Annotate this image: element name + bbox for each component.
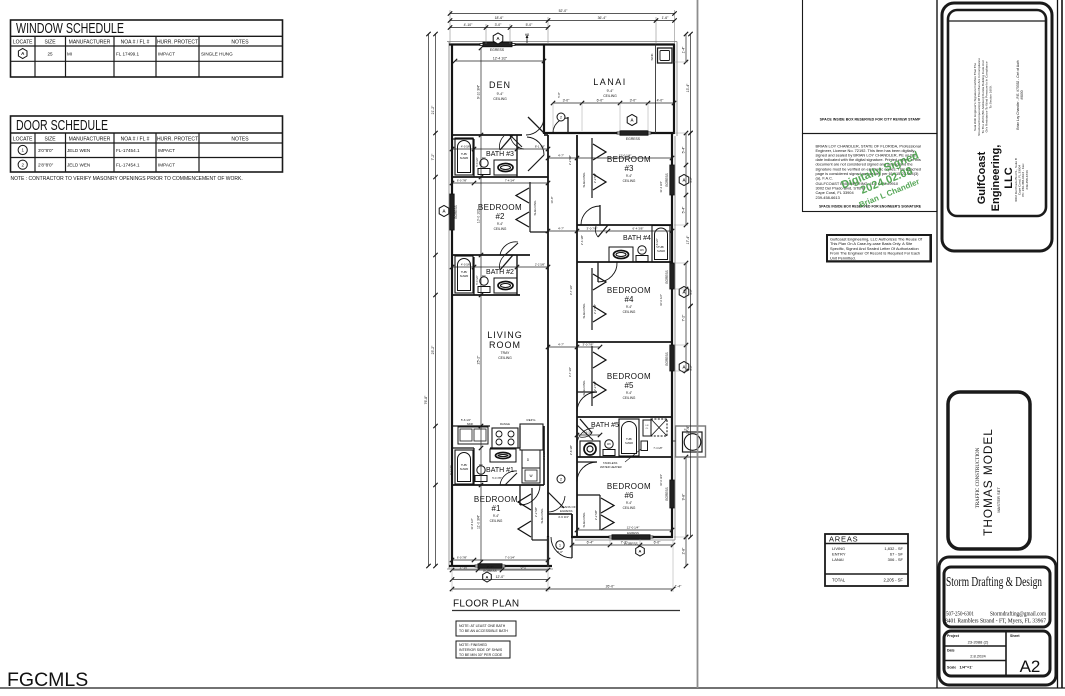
svg-text:AREAS: AREAS	[829, 535, 858, 544]
svg-text:239-458-6733: 239-458-6733	[1025, 170, 1029, 190]
svg-text:2'-6 1/2": 2'-6 1/2"	[583, 430, 593, 434]
svg-text:2'-2 5/8": 2'-2 5/8"	[594, 510, 598, 520]
svg-text:9'-4": 9'-4"	[626, 501, 632, 505]
svg-text:REF'G: REF'G	[527, 418, 537, 422]
svg-text:A: A	[486, 574, 489, 579]
svg-text:3'-2": 3'-2"	[689, 365, 693, 371]
svg-text:7'-4 1/8": 7'-4 1/8"	[653, 447, 662, 450]
svg-text:52'-0": 52'-0"	[559, 9, 568, 13]
svg-text:LIVING: LIVING	[487, 330, 523, 340]
svg-text:EGRESS: EGRESS	[665, 270, 669, 283]
svg-text:D: D	[527, 458, 530, 462]
svg-text:CEILING: CEILING	[490, 519, 503, 523]
svg-text:2'-8": 2'-8"	[681, 547, 685, 555]
svg-text:Storm Drafting & Design: Storm Drafting & Design	[946, 574, 1042, 589]
svg-text:25'-2": 25'-2"	[476, 355, 480, 364]
svg-text:6'-0": 6'-0"	[597, 98, 605, 102]
svg-text:EGRESS: EGRESS	[490, 48, 505, 52]
svg-text:SIZE: SIZE	[44, 40, 56, 46]
svg-text:4'-6 3/4": 4'-6 3/4"	[558, 515, 569, 519]
svg-text:DEN: DEN	[489, 80, 511, 90]
svg-text:To Section 1609.: To Section 1609.	[989, 85, 993, 108]
svg-text:5'-8": 5'-8"	[557, 92, 561, 98]
svg-text:IMPACT: IMPACT	[158, 163, 175, 168]
svg-text:1'-4": 1'-4"	[675, 584, 683, 588]
svg-text:Sheet: Sheet	[1010, 634, 1020, 638]
svg-text:21'-2": 21'-2"	[431, 105, 435, 114]
svg-text:THOMAS MODEL: THOMAS MODEL	[981, 428, 995, 536]
svg-text:EGRESS: EGRESS	[665, 352, 669, 365]
svg-text:5'-4": 5'-4"	[681, 146, 685, 154]
svg-text:2'-2 5/8": 2'-2 5/8"	[593, 304, 597, 314]
svg-text:7'-2": 7'-2"	[487, 565, 495, 569]
svg-text:LIVING: LIVING	[832, 546, 845, 551]
svg-text:Project: Project	[947, 634, 960, 638]
svg-text:25: 25	[47, 52, 53, 57]
svg-text:SHELVING: SHELVING	[582, 172, 586, 188]
svg-text:2'-10": 2'-10"	[460, 565, 469, 569]
svg-text:8401 Ramblers Strand - FT, Mye: 8401 Ramblers Strand - FT, Myers, FL 339…	[945, 619, 1046, 625]
svg-text:12'-0 1/4": 12'-0 1/4"	[627, 525, 640, 529]
svg-text:5'-0 7/8": 5'-0 7/8"	[492, 476, 502, 480]
svg-text:GulfCoast: GulfCoast	[976, 151, 988, 204]
svg-text:CL: CL	[646, 428, 650, 430]
svg-text:W: W	[529, 474, 532, 478]
svg-text:2.8.2024: 2.8.2024	[970, 654, 986, 659]
svg-text:6'-4": 6'-4"	[587, 540, 595, 544]
svg-text:SHWR: SHWR	[657, 249, 665, 253]
svg-text:JELD WEN: JELD WEN	[67, 163, 90, 168]
svg-text:ROOM: ROOM	[489, 340, 521, 350]
svg-text:TRAY: TRAY	[501, 351, 511, 355]
svg-text:6'-4 3/8": 6'-4 3/8"	[633, 226, 644, 230]
svg-text:5'-0 1/2": 5'-0 1/2"	[475, 157, 479, 167]
svg-text:3'-0 7/8": 3'-0 7/8"	[587, 226, 598, 230]
svg-text:FGCMLS: FGCMLS	[7, 669, 88, 691]
svg-text:4'-10": 4'-10"	[464, 23, 473, 27]
svg-text:SHELVING: SHELVING	[582, 380, 586, 396]
svg-text:9'-4": 9'-4"	[497, 92, 505, 96]
svg-text:4'-0 5/8": 4'-0 5/8"	[461, 144, 471, 148]
svg-text:NOTES: NOTES	[231, 137, 249, 143]
svg-text:9'-4": 9'-4"	[493, 514, 499, 518]
svg-text:(a), F.A.C.: (a), F.A.C.	[816, 175, 834, 180]
svg-text:3'0"8'0": 3'0"8'0"	[38, 148, 54, 153]
svg-text:9'-10 3/4": 9'-10 3/4"	[476, 84, 480, 99]
svg-text:7'-0 3/4": 7'-0 3/4"	[505, 555, 515, 559]
svg-text:SHWR: SHWR	[625, 441, 633, 445]
svg-text:MANUFACTURER: MANUFACTURER	[69, 40, 111, 46]
svg-text:EGRESS: EGRESS	[626, 137, 641, 141]
svg-text:TO BE MIN 30" PER CODE: TO BE MIN 30" PER CODE	[459, 653, 503, 657]
svg-text:7'-2": 7'-2"	[621, 540, 629, 544]
svg-text:SHWR: SHWR	[460, 156, 469, 160]
svg-text:SINK: SINK	[650, 53, 654, 60]
svg-text:1/4"=1': 1/4"=1'	[960, 665, 973, 670]
svg-text:2'-2 5/8": 2'-2 5/8"	[534, 507, 538, 517]
svg-text:EGRESS: EGRESS	[665, 173, 669, 186]
svg-text:CEILING: CEILING	[493, 97, 507, 101]
svg-text:9'-4": 9'-4"	[626, 174, 632, 178]
svg-text:LN: LN	[646, 425, 649, 427]
svg-text:SHWR: SHWR	[460, 274, 469, 278]
svg-text:HURR. PROTECT: HURR. PROTECT	[157, 137, 198, 143]
svg-text:FL-17454.1: FL-17454.1	[116, 163, 140, 168]
svg-text:DOOR SCHEDULE: DOOR SCHEDULE	[16, 118, 108, 134]
svg-text:507-250-6301: 507-250-6301	[946, 612, 974, 618]
svg-text:Unit Permitted.: Unit Permitted.	[830, 255, 856, 260]
svg-text:4'-7": 4'-7"	[558, 226, 564, 230]
svg-text:239-458-6613: 239-458-6613	[816, 195, 840, 200]
svg-text:FL 17499.1: FL 17499.1	[116, 52, 140, 57]
svg-text:LOCATE: LOCATE	[13, 137, 33, 143]
svg-text:BEDROOM: BEDROOM	[607, 482, 651, 491]
svg-text:6'-0 7/8": 6'-0 7/8"	[457, 178, 467, 182]
svg-text:2'-2 5/8": 2'-2 5/8"	[568, 155, 572, 165]
svg-text:5'-6 1/2": 5'-6 1/2"	[461, 418, 471, 422]
svg-text:#9800: #9800	[1020, 90, 1024, 99]
svg-text:EGRESS: EGRESS	[454, 205, 458, 218]
svg-text:5'-0 1/2": 5'-0 1/2"	[449, 465, 453, 475]
svg-text:9'-8": 9'-8"	[681, 493, 685, 501]
svg-text:67 - SF: 67 - SF	[890, 552, 904, 557]
svg-text:5'-4": 5'-4"	[681, 206, 685, 214]
svg-text:12'-0": 12'-0"	[496, 575, 505, 579]
svg-text:BEDROOM: BEDROOM	[607, 372, 651, 381]
svg-text:BATH #5: BATH #5	[591, 422, 619, 429]
svg-text:WC: WC	[640, 249, 644, 252]
svg-text:10'-0 1/2": 10'-0 1/2"	[659, 294, 663, 306]
svg-text:6'-0": 6'-0"	[654, 540, 662, 544]
svg-text:BATH #2: BATH #2	[486, 269, 514, 276]
svg-text:9'-4": 9'-4"	[607, 89, 615, 93]
svg-text:3'-0": 3'-0"	[630, 98, 638, 102]
svg-text:BEDROOM: BEDROOM	[478, 203, 522, 212]
svg-text:BATH #1: BATH #1	[486, 467, 514, 474]
svg-text:#6: #6	[625, 491, 634, 500]
svg-text:CEILING: CEILING	[494, 227, 507, 231]
svg-text:6'-2": 6'-2"	[521, 565, 529, 569]
svg-text:CEILING: CEILING	[498, 356, 512, 360]
svg-text:CEILING: CEILING	[623, 396, 636, 400]
svg-text:SHELVING: SHELVING	[582, 303, 586, 319]
svg-text:NOTE: FINISHED: NOTE: FINISHED	[459, 643, 487, 647]
svg-text:BEDROOM: BEDROOM	[607, 286, 651, 295]
svg-text:LOCATE: LOCATE	[13, 40, 33, 46]
svg-text:4'-0 5/8": 4'-0 5/8"	[461, 262, 471, 266]
svg-text:SPACE INSIDE BOX RESERVED FOR: SPACE INSIDE BOX RESERVED FOR CITY REVIE…	[820, 118, 921, 122]
svg-text:CEILING: CEILING	[623, 506, 636, 510]
svg-text:36'-4": 36'-4"	[598, 16, 607, 20]
svg-text:7'-2": 7'-2"	[681, 314, 685, 322]
svg-text:BATH #3: BATH #3	[486, 151, 514, 158]
svg-text:SIZE: SIZE	[44, 137, 56, 143]
svg-text:#4: #4	[625, 295, 634, 304]
svg-text:Scale: Scale	[947, 666, 956, 670]
svg-text:13'-4": 13'-4"	[686, 83, 690, 92]
svg-text:17'-4": 17'-4"	[686, 235, 690, 244]
svg-text:RANGE: RANGE	[500, 422, 510, 426]
svg-text:10'-0 1/2": 10'-0 1/2"	[476, 208, 480, 223]
svg-text:#1: #1	[492, 504, 501, 513]
svg-text:BATH #4: BATH #4	[623, 235, 651, 242]
svg-text:HURR. PROTECT: HURR. PROTECT	[157, 40, 198, 46]
svg-text:TO BE AN ACCESSIBLE BATH: TO BE AN ACCESSIBLE BATH	[459, 629, 508, 633]
svg-text:3'-2": 3'-2"	[689, 177, 693, 183]
svg-text:12'-4 1/2": 12'-4 1/2"	[493, 56, 508, 60]
svg-text:LANAI: LANAI	[593, 77, 627, 87]
svg-text:3'-7 1/2": 3'-7 1/2"	[569, 285, 573, 295]
svg-text:2'-6 1/8": 2'-6 1/8"	[580, 235, 584, 245]
svg-text:JELD WEN: JELD WEN	[67, 148, 90, 153]
svg-text:1,832 - SF: 1,832 - SF	[884, 546, 903, 551]
svg-text:3'-7 1/2": 3'-7 1/2"	[568, 367, 572, 377]
svg-text:WATER HEATER: WATER HEATER	[600, 465, 622, 469]
svg-text:NOTE : CONTRACTOR TO VERIFY MA: NOTE : CONTRACTOR TO VERIFY MASONRY OPEN…	[11, 176, 243, 182]
svg-text:26'-0": 26'-0"	[606, 584, 615, 588]
svg-text:SINGLE HUNG: SINGLE HUNG	[201, 52, 233, 57]
svg-text:INTERIOR SIDE OF SHWS: INTERIOR SIDE OF SHWS	[459, 648, 503, 652]
svg-text:3'-2": 3'-2"	[689, 289, 693, 295]
svg-text:4'-7": 4'-7"	[558, 153, 564, 157]
svg-text:TOTAL: TOTAL	[832, 578, 846, 583]
svg-text:FLOOR PLAN: FLOOR PLAN	[453, 599, 519, 610]
svg-text:NOTES: NOTES	[231, 40, 249, 46]
svg-text:IMPACT: IMPACT	[158, 52, 175, 57]
svg-text:EGRESS: EGRESS	[665, 487, 669, 500]
svg-text:7'-2": 7'-2"	[431, 153, 435, 161]
svg-text:1'-4": 1'-4"	[681, 46, 685, 54]
svg-text:306 - SF: 306 - SF	[888, 557, 904, 562]
svg-text:25'-2": 25'-2"	[431, 345, 435, 354]
svg-text:16'-8": 16'-8"	[550, 196, 554, 203]
svg-text:LANAI: LANAI	[832, 557, 844, 562]
svg-text:18'-6": 18'-6"	[495, 16, 504, 20]
svg-text:FL-17454.1: FL-17454.1	[116, 148, 140, 153]
svg-text:7'-4 3/4": 7'-4 3/4"	[505, 178, 515, 182]
svg-text:2'-2 5/8": 2'-2 5/8"	[593, 173, 597, 183]
svg-text:WC: WC	[607, 443, 611, 446]
svg-text:8'-1 3/8": 8'-1 3/8"	[535, 144, 545, 148]
svg-text:BEDROOM: BEDROOM	[474, 495, 518, 504]
svg-text:EGRESS: EGRESS	[560, 509, 573, 513]
svg-text:CEILING: CEILING	[623, 310, 636, 314]
svg-text:MASTER SET: MASTER SET	[996, 487, 1001, 513]
svg-text:#2: #2	[496, 212, 505, 221]
svg-text:#5: #5	[625, 381, 634, 390]
svg-text:WINDOW SCHEDULE: WINDOW SCHEDULE	[16, 21, 124, 37]
svg-text:10'-0 3/4": 10'-0 3/4"	[659, 474, 663, 486]
svg-text:2'-2 5/8": 2'-2 5/8"	[542, 450, 546, 460]
svg-text:5'-0": 5'-0"	[526, 23, 534, 27]
svg-text:2'-8 1/8": 2'-8 1/8"	[569, 445, 573, 455]
svg-text:Stormdrafting@gmail.com: Stormdrafting@gmail.com	[990, 611, 1046, 618]
svg-text:MI: MI	[67, 52, 72, 57]
svg-text:EGRESS: EGRESS	[627, 531, 639, 535]
svg-text:ENTRY: ENTRY	[832, 552, 846, 557]
svg-text:6'-0 7/8": 6'-0 7/8"	[457, 555, 467, 559]
svg-text:CEILING: CEILING	[623, 179, 636, 183]
svg-text:3'-0": 3'-0"	[557, 550, 563, 554]
svg-text:NOA # / FL #: NOA # / FL #	[121, 40, 150, 46]
svg-text:#3: #3	[625, 164, 634, 173]
svg-text:9'-4": 9'-4"	[497, 222, 503, 226]
svg-text:NOTE: AT LEAST ONE BATH: NOTE: AT LEAST ONE BATH	[459, 624, 506, 628]
svg-text:3'-0 7/8": 3'-0 7/8"	[583, 342, 594, 346]
svg-text:SHWR: SHWR	[460, 467, 469, 471]
svg-text:4'-7": 4'-7"	[558, 342, 564, 346]
svg-text:23-2088 (2): 23-2088 (2)	[968, 640, 989, 645]
svg-text:Engineering,: Engineering,	[990, 145, 1002, 212]
svg-text:2,205 - SF: 2,205 - SF	[883, 578, 903, 583]
svg-text:4'-0": 4'-0"	[657, 98, 665, 102]
svg-text:3'-0": 3'-0"	[495, 23, 503, 27]
svg-text:9'-4": 9'-4"	[626, 391, 632, 395]
svg-text:SHELVING: SHELVING	[540, 508, 544, 524]
svg-text:A2: A2	[1020, 657, 1041, 676]
svg-text:2'-2 5/8": 2'-2 5/8"	[593, 381, 597, 391]
svg-text:3'-0": 3'-0"	[563, 98, 571, 102]
svg-text:17'-4": 17'-4"	[686, 425, 690, 434]
svg-text:IMPACT: IMPACT	[158, 148, 175, 153]
svg-text:SHELVING: SHELVING	[533, 200, 537, 216]
svg-text:5'-0 1/2": 5'-0 1/2"	[475, 275, 479, 285]
svg-text:CEILING: CEILING	[603, 94, 617, 98]
svg-text:TUB/: TUB/	[626, 437, 632, 441]
svg-text:A: A	[639, 548, 642, 553]
svg-text:2'-6 1/2": 2'-6 1/2"	[655, 238, 659, 248]
svg-text:11'-0 3/4": 11'-0 3/4"	[476, 514, 480, 529]
svg-text:11'-2 3/4": 11'-2 3/4"	[659, 181, 663, 193]
svg-text:2'-2 5/8": 2'-2 5/8"	[535, 262, 545, 266]
svg-text:11'-8 1/2": 11'-8 1/2"	[470, 518, 474, 530]
svg-text:SHELVING: SHELVING	[582, 512, 586, 528]
svg-text:MANUFACTURER: MANUFACTURER	[69, 137, 111, 143]
svg-text:Date: Date	[947, 649, 955, 653]
svg-text:2'8"8'0": 2'8"8'0"	[38, 163, 54, 168]
svg-text:76'-8": 76'-8"	[424, 395, 428, 404]
svg-text:NOA # / FL #: NOA # / FL #	[121, 137, 150, 143]
svg-text:9'-4": 9'-4"	[626, 305, 632, 309]
svg-text:SINK: SINK	[467, 422, 474, 426]
svg-text:1'-6": 1'-6"	[662, 16, 670, 20]
svg-text:12'-0 1/4": 12'-0 1/4"	[619, 153, 632, 157]
